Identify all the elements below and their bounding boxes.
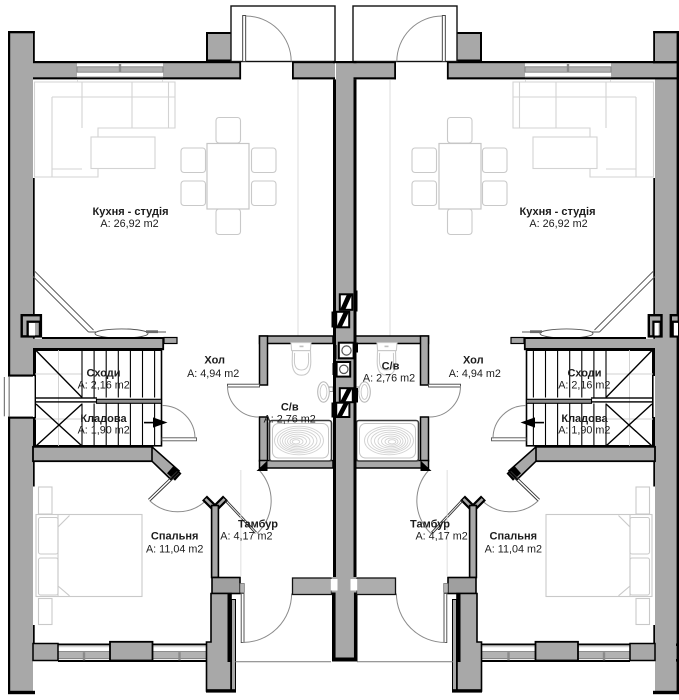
svg-text:Кухня - студія: Кухня - студія [519,206,595,218]
svg-text:A: 2,76 m2: A: 2,76 m2 [264,414,316,426]
svg-text:Спальня: Спальня [490,531,538,543]
svg-text:Сходи: Сходи [86,368,120,380]
svg-text:A: 4,17 m2: A: 4,17 m2 [415,531,467,543]
svg-text:A: 4,17 m2: A: 4,17 m2 [220,531,272,543]
svg-text:Хол: Хол [204,355,225,367]
svg-text:С/в: С/в [382,361,400,373]
svg-text:A: 2,76 m2: A: 2,76 m2 [363,373,415,385]
svg-text:A: 1,90 m2: A: 1,90 m2 [78,425,130,437]
svg-text:Сходи: Сходи [567,368,601,380]
svg-text:A: 2,16 m2: A: 2,16 m2 [558,380,610,392]
svg-text:A: 26,92 m2: A: 26,92 m2 [100,218,158,230]
svg-text:A: 26,92 m2: A: 26,92 m2 [529,218,587,230]
svg-text:Хол: Хол [463,355,484,367]
svg-text:A: 1,90 m2: A: 1,90 m2 [558,425,610,437]
svg-text:Кладова: Кладова [80,413,127,425]
svg-text:A: 11,04 m2: A: 11,04 m2 [146,544,203,556]
svg-text:A: 11,04 m2: A: 11,04 m2 [485,544,542,556]
svg-text:Кладова: Кладова [561,413,608,425]
svg-text:Тамбур: Тамбур [238,519,278,531]
svg-text:Кухня - студія: Кухня - студія [92,206,168,218]
svg-text:A: 2,16 m2: A: 2,16 m2 [78,380,130,392]
svg-text:Тамбур: Тамбур [410,519,450,531]
svg-text:A: 4,94 m2: A: 4,94 m2 [187,368,239,380]
svg-text:A: 4,94 m2: A: 4,94 m2 [449,368,501,380]
svg-text:Спальня: Спальня [151,531,199,543]
svg-text:С/в: С/в [281,402,299,414]
